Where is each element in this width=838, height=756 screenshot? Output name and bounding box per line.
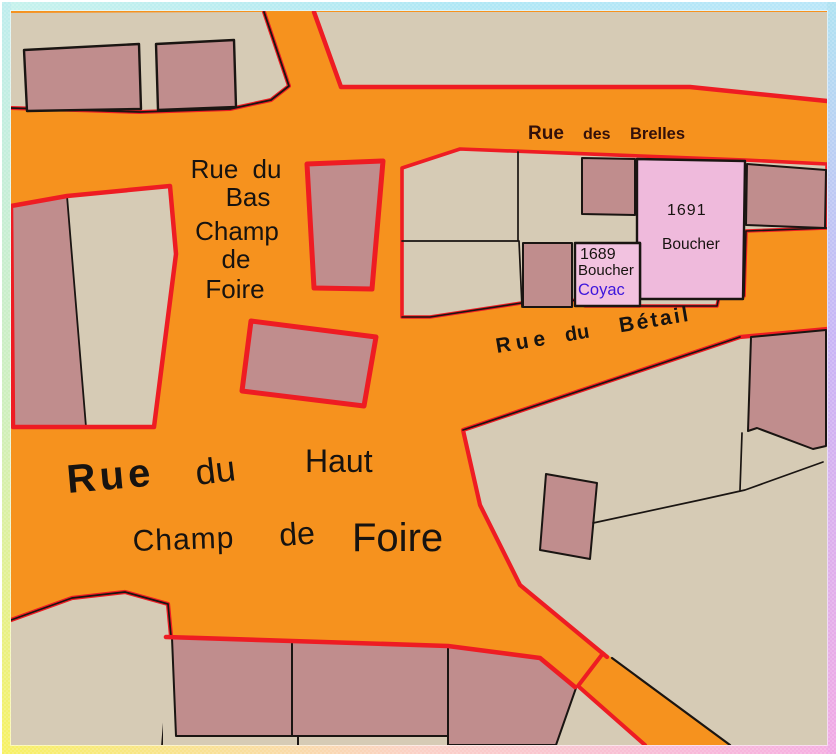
building: [746, 164, 826, 228]
block-top-left: [11, 12, 289, 112]
map-page: Rue des Brelles Rue du Bas Champ de Foir…: [0, 0, 838, 756]
street-label-word: Rue: [65, 451, 156, 502]
street-label-line: Rue du: [191, 154, 282, 184]
building: [540, 474, 597, 559]
parcel-1691-number: 1691: [667, 202, 707, 219]
street-label-word: des: [583, 126, 611, 143]
building: [172, 638, 292, 736]
parcel-1689-number: 1689: [580, 246, 616, 263]
street-label-word: de: [278, 515, 316, 553]
building-freestanding-north: [307, 161, 383, 289]
street-label-line: Bas: [226, 182, 271, 212]
street-label-word: Haut: [305, 443, 373, 479]
block-bottom-left: [11, 592, 171, 745]
street-label-word: Rue: [528, 123, 564, 144]
block-island-west: [11, 186, 176, 427]
map-canvas: Rue des Brelles Rue du Bas Champ de Foir…: [0, 0, 838, 756]
street-label-word: du: [563, 321, 591, 347]
street-label-line: Champ: [195, 216, 279, 246]
block-bottom-left-ground: [11, 592, 171, 745]
parcel-1689-owner-name: Coyac: [578, 281, 625, 299]
street-label-word: Brelles: [630, 125, 685, 143]
street-label-line: de: [222, 244, 251, 274]
parcel-1691-occupant: Boucher: [662, 236, 720, 253]
street-label-word: Champ: [132, 521, 235, 558]
building: [582, 158, 635, 215]
building: [24, 44, 141, 111]
block-top-right: [314, 12, 827, 101]
street-label-word: du: [193, 447, 238, 493]
building: [156, 40, 236, 110]
building: [523, 243, 572, 307]
street-label-rue-des-brelles: Rue des Brelles: [528, 123, 685, 144]
building-freestanding-south: [242, 321, 376, 406]
street-label-line: Foire: [205, 274, 264, 304]
building: [292, 641, 448, 736]
parcel-1689-occupant: Boucher: [578, 262, 634, 279]
parcel-1691: [637, 159, 745, 299]
street-label-word: Foire: [352, 516, 443, 560]
